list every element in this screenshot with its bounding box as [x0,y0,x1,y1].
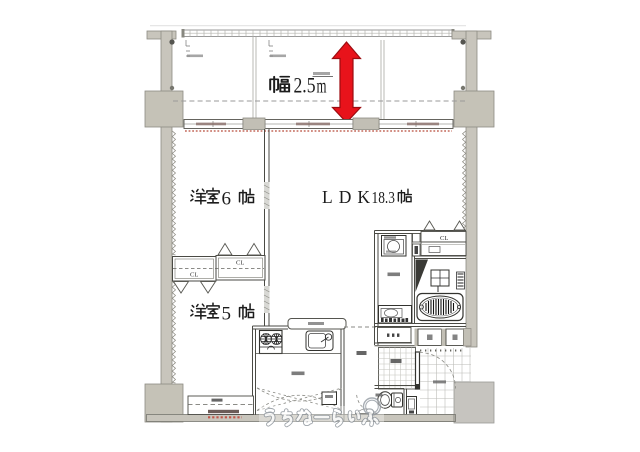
svg-text:5: 5 [222,304,232,325]
svg-text:CL: CL [190,272,198,279]
svg-text:CL: CL [236,260,244,267]
svg-text:m: m [317,74,327,98]
svg-text:18.3: 18.3 [372,188,396,207]
svg-text:LDK: LDK [322,187,370,207]
svg-text:2.5: 2.5 [294,73,316,98]
svg-text:6: 6 [222,189,232,210]
svg-text:CL: CL [440,235,448,242]
